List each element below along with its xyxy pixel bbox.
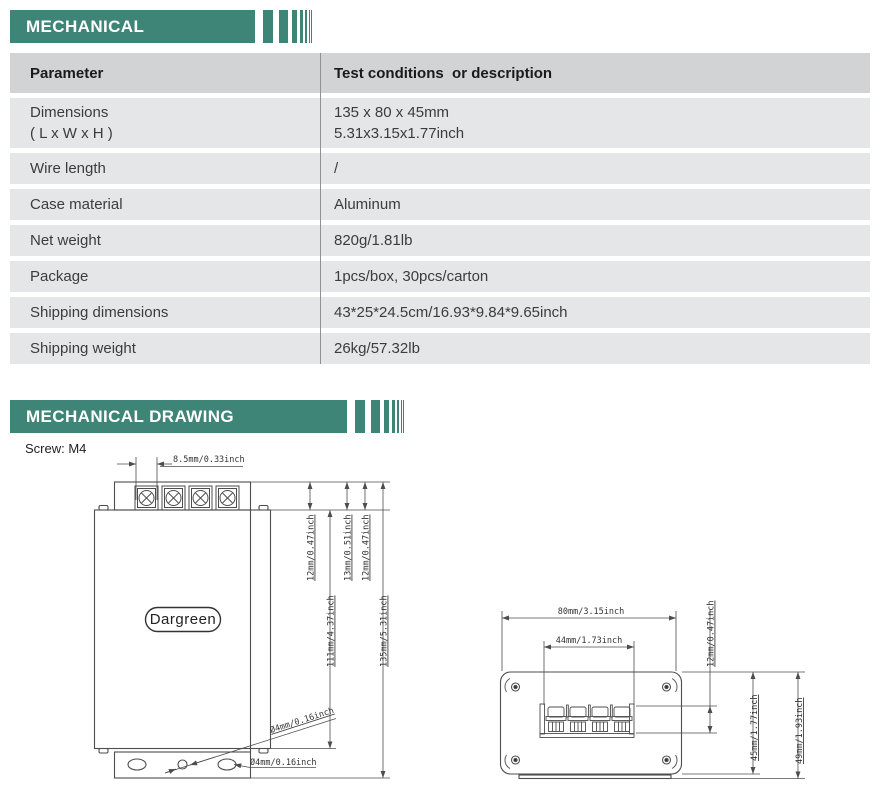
table-row: Dimensions ( L x W x H ) 135 x 80 x 45mm…: [10, 98, 870, 148]
section-title-mechanical-drawing: MECHANICAL DRAWING: [26, 407, 234, 427]
bar: [300, 10, 303, 43]
dim-label-body-height: 111mm/4.37inch: [327, 595, 337, 667]
param-cell: Case material: [10, 194, 320, 215]
dim-label-terminal-depth: 12mm/0.47inch: [707, 600, 717, 667]
dim-label-terminal-width: 44mm/1.73inch: [556, 636, 623, 646]
brand-logo-badge: Dargreen: [146, 608, 221, 632]
brand-logo-text: Dargreen: [150, 611, 217, 628]
dim-label-terminal-height: 13mm/0.51inch: [344, 514, 354, 581]
bar: [401, 400, 402, 433]
top-view-dimension-labels: 80mm/3.15inch 44mm/1.73inch 12mm/0.47inc…: [556, 600, 805, 764]
mechanical-parameters-table: Parameter Test conditions or description…: [10, 53, 870, 369]
table-row: Wire length /: [10, 153, 870, 184]
value-cell: 135 x 80 x 45mm 5.31x3.15x1.77inch: [320, 102, 870, 144]
bar: [355, 400, 365, 433]
dim-label-width: 80mm/3.15inch: [558, 607, 625, 617]
param-cell: Shipping dimensions: [10, 302, 320, 323]
top-view-outline: [501, 672, 682, 779]
section-header-mechanical: MECHANICAL: [10, 10, 255, 43]
section-header-mechanical-drawing: MECHANICAL DRAWING: [10, 400, 347, 433]
table-row: Shipping weight 26kg/57.32lb: [10, 333, 870, 364]
table-row: Case material Aluminum: [10, 189, 870, 220]
dim-label-total-height: 49mm/1.93inch: [795, 697, 805, 764]
header-barcode-decoration: [355, 400, 404, 433]
table-row: Package 1pcs/box, 30pcs/carton: [10, 261, 870, 292]
table-row: Net weight 820g/1.81lb: [10, 225, 870, 256]
bar: [279, 10, 288, 43]
param-line: Dimensions: [30, 102, 320, 123]
dim-label-screw-pitch: 8.5mm/0.33inch: [173, 455, 245, 465]
top-view-terminal-block: [540, 704, 634, 738]
bar: [292, 10, 297, 43]
param-cell: Dimensions ( L x W x H ): [10, 102, 320, 144]
param-cell: Package: [10, 266, 320, 287]
column-header-description: Test conditions or description: [320, 63, 870, 84]
table-column-divider: [320, 53, 321, 364]
param-cell: Wire length: [10, 158, 320, 179]
dim-label-offset-1: 12mm/0.47inch: [307, 514, 317, 581]
value-cell: 1pcs/box, 30pcs/carton: [320, 266, 870, 287]
table-row: Shipping dimensions 43*25*24.5cm/16.93*9…: [10, 297, 870, 328]
param-cell: Net weight: [10, 230, 320, 251]
dim-label-total-height: 135mm/5.31inch: [380, 595, 390, 667]
value-cell: Aluminum: [320, 194, 870, 215]
section-title-mechanical: MECHANICAL: [26, 17, 144, 37]
column-header-parameter: Parameter: [10, 63, 320, 84]
dim-label-offset-2: 12mm/0.47inch: [362, 514, 372, 581]
bar: [384, 400, 389, 433]
front-view-terminals: [135, 486, 239, 510]
value-line: 5.31x3.15x1.77inch: [334, 123, 870, 144]
bar: [263, 10, 273, 43]
param-cell: Shipping weight: [10, 338, 320, 359]
table-header-row: Parameter Test conditions or description: [10, 53, 870, 93]
dim-label-hole-diagonal: Ø4mm/0.16inch: [269, 705, 336, 736]
bar: [305, 10, 307, 43]
bar: [311, 10, 312, 43]
dim-label-hole-horizontal: Ø4mm/0.16inch: [250, 757, 317, 768]
header-barcode-decoration: [263, 10, 312, 43]
bar: [392, 400, 395, 433]
front-view-outline: [95, 482, 271, 778]
bar: [371, 400, 380, 433]
param-line: ( L x W x H ): [30, 123, 320, 144]
value-line: 135 x 80 x 45mm: [334, 102, 870, 123]
dim-label-case-height: 45mm/1.77inch: [750, 694, 760, 761]
bar: [309, 10, 310, 43]
value-cell: 26kg/57.32lb: [320, 338, 870, 359]
value-cell: 820g/1.81lb: [320, 230, 870, 251]
mechanical-drawings-canvas: Dargreen 8.5mm/0.33inch 12mm/0.47inch 13…: [0, 450, 883, 794]
value-cell: /: [320, 158, 870, 179]
bar: [403, 400, 404, 433]
bar: [397, 400, 399, 433]
value-cell: 43*25*24.5cm/16.93*9.84*9.65inch: [320, 302, 870, 323]
